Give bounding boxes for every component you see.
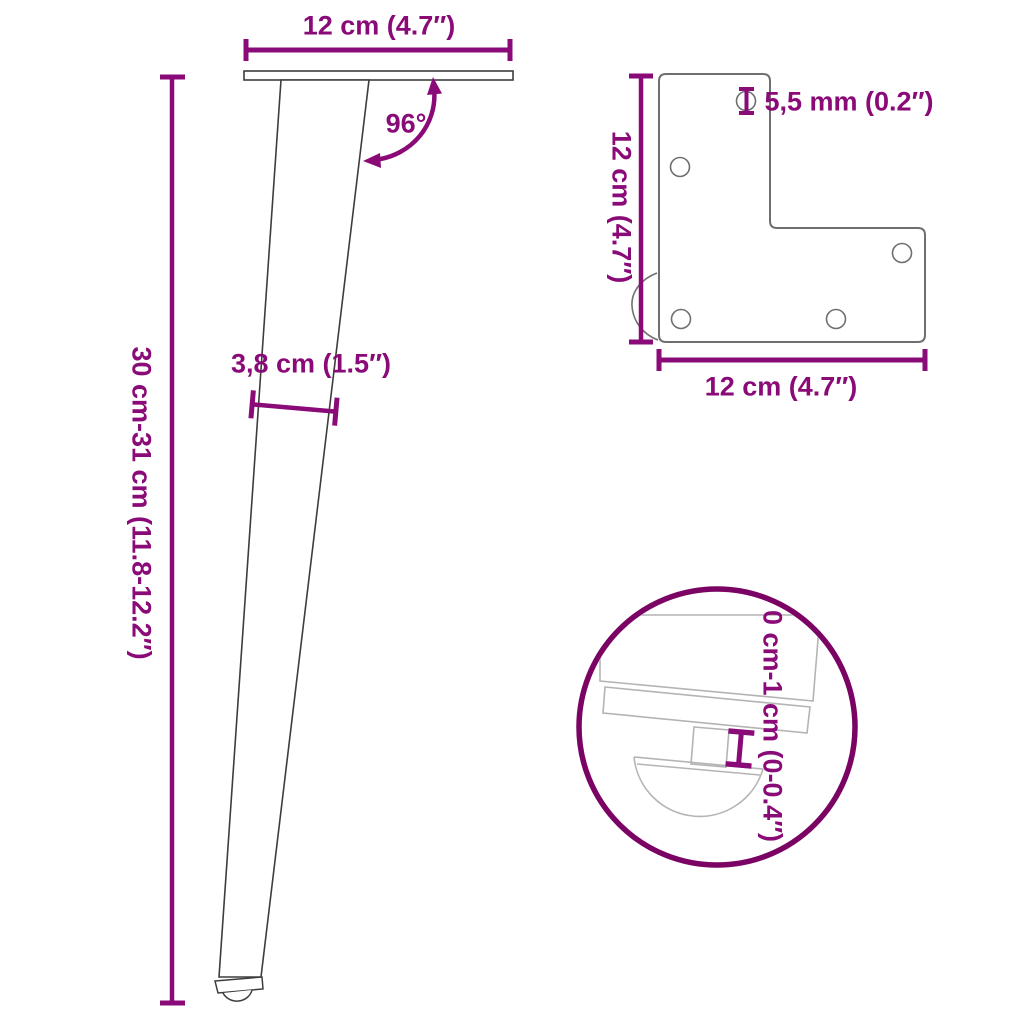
adjust-range-dimension [726, 731, 755, 766]
height-dimension [160, 77, 185, 1003]
table-top-bar [244, 71, 513, 80]
leg-foot-cap [215, 977, 263, 993]
leg-outline [219, 80, 369, 977]
plate-height-dimension-label: 12 cm (4.7″) [606, 131, 637, 284]
mounting-plate-top-view [629, 74, 925, 371]
angle-label: 96° [386, 109, 427, 140]
detail-adjuster-block [691, 727, 729, 767]
top-width-dimension-label: 12 cm (4.7″) [303, 11, 456, 42]
top-width-dimension [246, 39, 510, 61]
product-dimension-diagram: 12 cm (4.7″) 96° 30 cm-31 cm (11.8-12.2″… [0, 0, 1024, 1024]
screw-hole [893, 244, 912, 263]
hole-diameter-label: 5,5 mm (0.2″) [764, 87, 933, 118]
leg-side-view [160, 39, 513, 1003]
thickness-dimension-label: 3,8 cm (1.5″) [231, 349, 391, 380]
screw-hole [827, 310, 846, 329]
screw-hole [672, 310, 691, 329]
plate-width-dimension [659, 349, 925, 371]
screw-hole [671, 158, 690, 177]
plate-width-dimension-label: 12 cm (4.7″) [705, 372, 858, 403]
height-dimension-label: 30 cm-31 cm (11.8-12.2″) [126, 346, 157, 659]
foot-adjustment-detail [579, 589, 855, 865]
adjust-range-label: 0 cm-1 cm (0-0.4″) [757, 610, 788, 842]
